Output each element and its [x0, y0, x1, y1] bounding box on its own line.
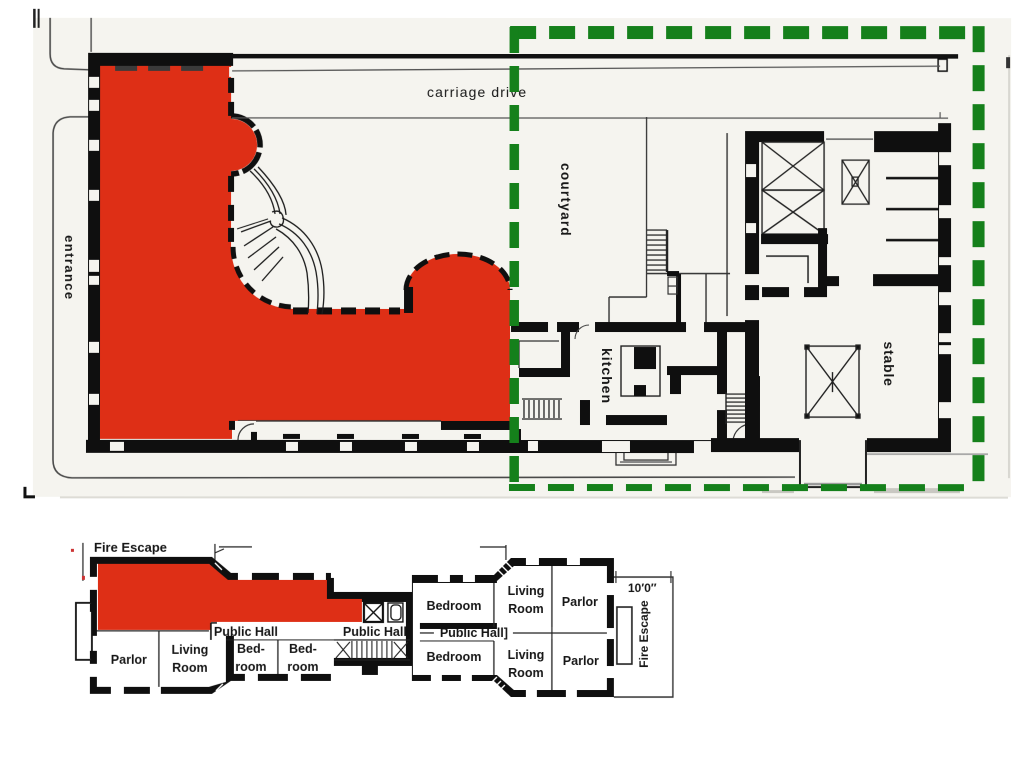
svg-text:Bed-: Bed- — [289, 642, 317, 656]
svg-text:entrance: entrance — [62, 235, 77, 300]
svg-text:Public Hall: Public Hall — [214, 625, 278, 639]
svg-text:Living: Living — [507, 648, 544, 662]
svg-text:Room: Room — [508, 602, 543, 616]
svg-text:Room: Room — [508, 666, 543, 680]
svg-text:Bed-: Bed- — [237, 642, 265, 656]
svg-text:Parlor: Parlor — [111, 653, 147, 667]
svg-text:Room: Room — [172, 661, 207, 675]
svg-text:10′0″: 10′0″ — [628, 581, 657, 595]
svg-text:room: room — [287, 660, 318, 674]
svg-text:courtyard: courtyard — [558, 163, 573, 237]
svg-text:Living: Living — [508, 584, 545, 598]
svg-text:Bedroom: Bedroom — [426, 650, 481, 664]
svg-text:Fire Escape: Fire Escape — [637, 600, 651, 668]
svg-text:Bedroom: Bedroom — [426, 599, 481, 613]
svg-text:kitchen: kitchen — [599, 348, 615, 404]
svg-text:Public Hall: Public Hall — [343, 625, 407, 639]
svg-text:Parlor: Parlor — [563, 654, 599, 668]
svg-text:Fire Escape: Fire Escape — [94, 540, 167, 555]
svg-text:Parlor: Parlor — [562, 595, 598, 609]
svg-text:Living: Living — [171, 643, 208, 657]
svg-text:room: room — [235, 660, 266, 674]
svg-text:stable: stable — [881, 341, 897, 386]
